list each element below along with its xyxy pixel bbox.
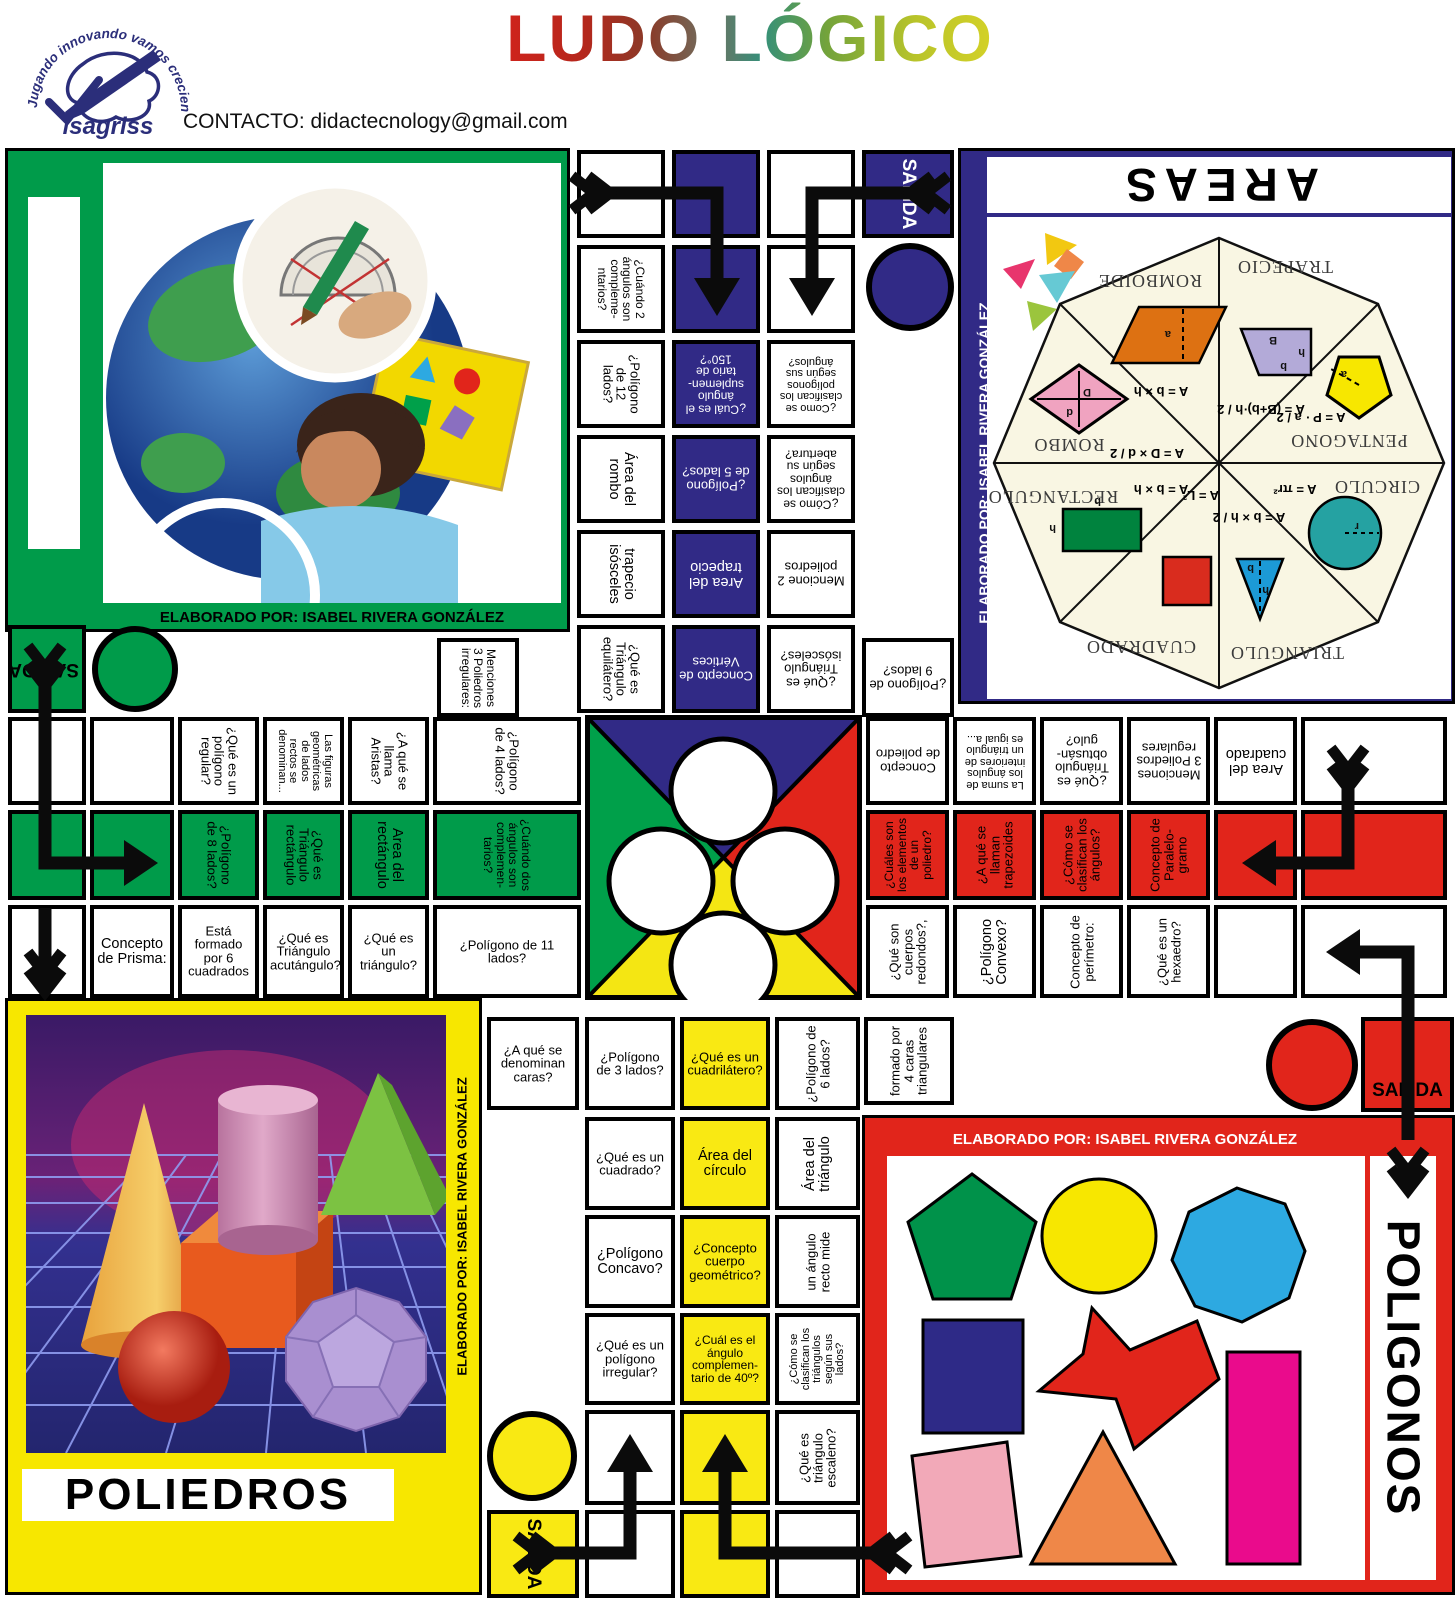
board-cell[interactable]: ¿Polígono de 9 lados? [862,638,954,717]
quadrant-taller: ELABORADO POR: ISABEL RIVERA GONZÁLEZ [5,148,570,632]
board-cell[interactable]: La suma de los ángulos interiores de un … [953,717,1036,805]
board-cell[interactable]: ¿A qué se llama Aristas? [348,717,429,805]
board-cell[interactable]: Área del rombo [577,435,665,523]
credit-line: ELABORADO POR: ISABEL RIVERA GONZÁLEZ [103,609,561,626]
board-cell[interactable] [577,150,665,238]
svg-text:A = b × h / 2: A = b × h / 2 [1213,510,1285,525]
svg-text:A = P · a / 2: A = P · a / 2 [1276,410,1345,425]
svg-text:b: b [1247,562,1254,574]
board-cell[interactable]: ¿Qué es triángulo escaleno? [775,1410,860,1505]
rhomboid [912,1442,1021,1567]
board-cell[interactable]: ¿Qué es un hexaedro? [1127,905,1210,998]
board-cell[interactable]: ¿Polígono de 4 lados? [433,717,581,805]
credit-line: ELABORADO POR: ISABEL RIVERA GONZÁLEZ [885,1131,1365,1148]
svg-text:TRAPECIO: TRAPECIO [1237,257,1333,277]
board-cell[interactable]: Area del rectángulo [348,810,429,900]
board-cell[interactable]: ¿Cuál es el ángulo complemen- tario de 4… [680,1313,770,1405]
board-cell[interactable] [585,1510,675,1598]
board-cell[interactable]: ¿Qué es Triángulo rectángulo [263,810,344,900]
board-cell[interactable]: ¿Qué es un cuadrado? [585,1117,675,1210]
svg-text:h: h [1298,346,1305,358]
board-cell[interactable]: Area del trapecio [672,530,760,618]
board-cell[interactable]: ¿Polígono de 6 lados? [775,1017,860,1110]
board-cell[interactable] [90,717,174,805]
isagriss-logo: Jugando innovando vamos creciendo isagri… [13,6,195,146]
svg-text:TRIANGULO: TRIANGULO [1230,643,1344,663]
svg-text:h: h [1049,522,1056,534]
board-cell[interactable] [680,1410,770,1505]
home-slot [671,739,775,843]
board-cell[interactable]: ¿Cómo se clasifican los ángulos según su… [767,435,855,523]
svg-text:r: r [1354,520,1359,532]
start-circle[interactable] [487,1411,577,1501]
board-cell[interactable] [767,245,855,333]
board-cell[interactable]: ¿Cuáles son los elementos de un poliedro… [866,810,949,900]
salida-cell[interactable]: SALIDA [1361,1017,1454,1112]
svg-text:d: d [1066,406,1073,418]
board-cell[interactable]: Las figuras geométricas de lados rectos … [263,717,344,805]
board-cell[interactable] [672,150,760,238]
board-cell[interactable]: Mencione 2 poliedros [767,530,855,618]
child-face [301,429,381,509]
board-cell[interactable]: Concepto de perímetro: [1040,905,1123,998]
board-cell[interactable]: ¿Cuándo dos ángulos son complemen- tario… [433,810,581,900]
board-cell[interactable]: ¿Qué es un cuadrilátero? [680,1017,770,1110]
start-circle[interactable] [92,626,178,712]
board-cell[interactable]: un ángulo recto mide [775,1215,860,1308]
quadrant-poliedros: ELABORADO POR: ISABEL RIVERA GONZÁLEZ PO… [5,998,482,1595]
svg-text:ROMBOIDE: ROMBOIDE [1098,271,1202,291]
poligonos-shapes [887,1156,1365,1580]
board-cell[interactable]: ¿Cuándo 2 ángulos son compleme- ntarios? [577,245,665,333]
poliedros-title-band: POLIEDROS [22,1469,394,1521]
board-cell[interactable]: ¿Polígono de 8 lados? [178,810,259,900]
board-cell[interactable] [775,1510,860,1598]
board-cell[interactable]: ¿Polígono Convexo? [953,905,1036,998]
board-cell[interactable]: ¿Concepto cuerpo geométrico? [680,1215,770,1308]
areas-title: AREAS [1118,158,1319,212]
svg-text:A = D × d / 2: A = D × d / 2 [1110,446,1184,461]
poligonos-title: POLIGONOS [1376,1220,1430,1517]
svg-text:a: a [1340,368,1347,380]
svg-text:h: h [1262,584,1269,596]
board-cell[interactable]: ¿Cuál es el ángulo suplemen- tario de 15… [672,340,760,428]
board-cell[interactable]: Concepto de Prisma: [90,905,174,998]
board-cell[interactable] [1214,905,1297,998]
poliedros-image [26,1015,446,1453]
board-cell[interactable] [1214,810,1297,900]
board-cell[interactable]: Concepto de Paralelo- gramo [1127,810,1210,900]
dodecahedron [286,1288,426,1431]
board-cell[interactable] [8,810,86,900]
child-shirt [261,506,458,603]
board-cell[interactable]: ¿Qué es Triángulo equilátero? [577,625,665,713]
board-cell[interactable]: ¿Como se clasifican los polígonos según … [767,340,855,428]
board-cell[interactable] [1301,905,1447,998]
board-cell[interactable]: ¿Qué es un triángulo? [348,905,429,998]
classroom-photo [103,163,561,603]
square [923,1320,1023,1433]
start-circle[interactable] [866,243,954,331]
start-circle[interactable] [1266,1019,1358,1111]
board-cell[interactable]: ¿Qué es Triángulo acutángulo? [263,905,344,998]
board-cell[interactable] [585,1410,675,1505]
quadrant-areas: AREAS ELABORADO POR: ISABEL RIVERA GONZÁ… [958,148,1455,704]
areas-formula-wheel: TRAPECIO B b h A = (B+b)·h / 2 ROMBOIDE … [987,217,1451,699]
svg-text:b: b [1280,360,1287,372]
board-cell[interactable]: ¿A qué se denominan caras? [487,1017,579,1110]
quadrant-poligonos: ELABORADO POR: ISABEL RIVERA GONZÁLEZ PO… [862,1115,1455,1595]
board-cell[interactable] [1301,810,1447,900]
salida-cell[interactable]: SALIDA [8,625,86,713]
board-cell[interactable]: Concepto de Vértices [672,625,760,713]
board-cell[interactable]: Concepto de poliedro [866,717,949,805]
board-cell[interactable] [672,245,760,333]
svg-text:A = b × h: A = b × h [1134,482,1188,497]
board-cell[interactable] [90,810,174,900]
board-cell[interactable]: Área del triángulo [775,1117,860,1210]
board-cell[interactable]: ¿Qué son cuerpos redondos?, [866,905,949,998]
board-cell[interactable]: ¿Polígono de 12 lados? [577,340,665,428]
board-cell[interactable] [680,1510,770,1598]
salida-cell[interactable]: SALIDA [487,1510,579,1598]
board-cell[interactable]: Menciones 3 Poliedros regulares [1127,717,1210,805]
board-cell[interactable] [767,150,855,238]
svg-text:ROMBO: ROMBO [1033,435,1104,455]
board-cell[interactable]: Menciones 3 Poliedros irregulares: [437,638,519,717]
center-home [585,715,862,1000]
board-cell[interactable]: ¿Cómo se clasifican los ángulos? [1040,810,1123,900]
svg-text:CUADRADO: CUADRADO [1086,637,1196,657]
svg-text:D: D [1083,386,1091,398]
salida-cell[interactable]: SALIDA [862,150,954,238]
board-cell[interactable]: ¿Qué es Triángulo obtusán- gulo? [1040,717,1123,805]
board-cell[interactable] [8,905,86,998]
page-title: LUDO LÓGICO [430,0,1070,76]
board-cell[interactable]: ¿Polígono de 3 lados? [585,1017,675,1110]
board-cell[interactable] [1301,717,1447,805]
sphere [118,1311,230,1423]
poliedros-title: POLIEDROS [65,1470,351,1520]
areas-title-band: AREAS [987,157,1451,213]
svg-text:a: a [1164,328,1171,340]
board-cell[interactable]: Está formado por 6 cuadrados [178,905,259,998]
svg-text:CIRCULO: CIRCULO [1334,477,1420,497]
board-cell[interactable]: trapecio isósceles [577,530,665,618]
board-cell[interactable]: ¿Polígono Concavo? [585,1215,675,1308]
svg-text:A = b × h: A = b × h [1134,384,1188,399]
rectangle [1227,1352,1300,1564]
board-cell[interactable]: ¿Qué es un polígono irregular? [585,1313,675,1405]
board-cell[interactable]: ¿Cómo se clasifican los triángulos según… [775,1313,860,1405]
circle-shape [1042,1179,1156,1293]
credit-line-vertical: ELABORADO POR: ISABEL RIVERA GONZÁLEZ [455,1012,470,1442]
svg-text:b: b [1094,495,1101,507]
board-cell[interactable]: ¿A qué se llaman trapezoides [953,810,1036,900]
svg-text:A = L²: A = L² [1182,488,1219,503]
board-cell[interactable]: formado por 4 caras triangulares [864,1017,954,1105]
svg-text:PENTAGONO: PENTAGONO [1290,431,1408,451]
cylinder [218,1100,318,1240]
blank-label-strip [28,197,80,549]
svg-text:A = πr²: A = πr² [1273,482,1317,497]
poligonos-title-strip: POLIGONOS [1370,1156,1436,1580]
contact-line: CONTACTO: didactecnology@gmail.com [183,110,568,134]
board-cell[interactable]: ¿Qué es Triángulo isósceles? [767,625,855,713]
board-cell[interactable]: ¿Qué es un polígono regular? [178,717,259,805]
logo-brand: isagriss [63,113,154,140]
board-cell[interactable]: ¿Polígono de 11 lados? [433,905,581,998]
board-cell[interactable]: Area del cuadrado [1214,717,1297,805]
ludo-board: LUDO LÓGICO CONTACTO: didactecnology@gma… [0,0,1455,1600]
svg-text:B: B [1269,334,1277,346]
board-cell[interactable] [8,717,86,805]
home-slot [671,913,775,1000]
board-cell[interactable]: Área del círculo [680,1117,770,1210]
board-cell[interactable]: ¿Polígono de 5 lados? [672,435,760,523]
